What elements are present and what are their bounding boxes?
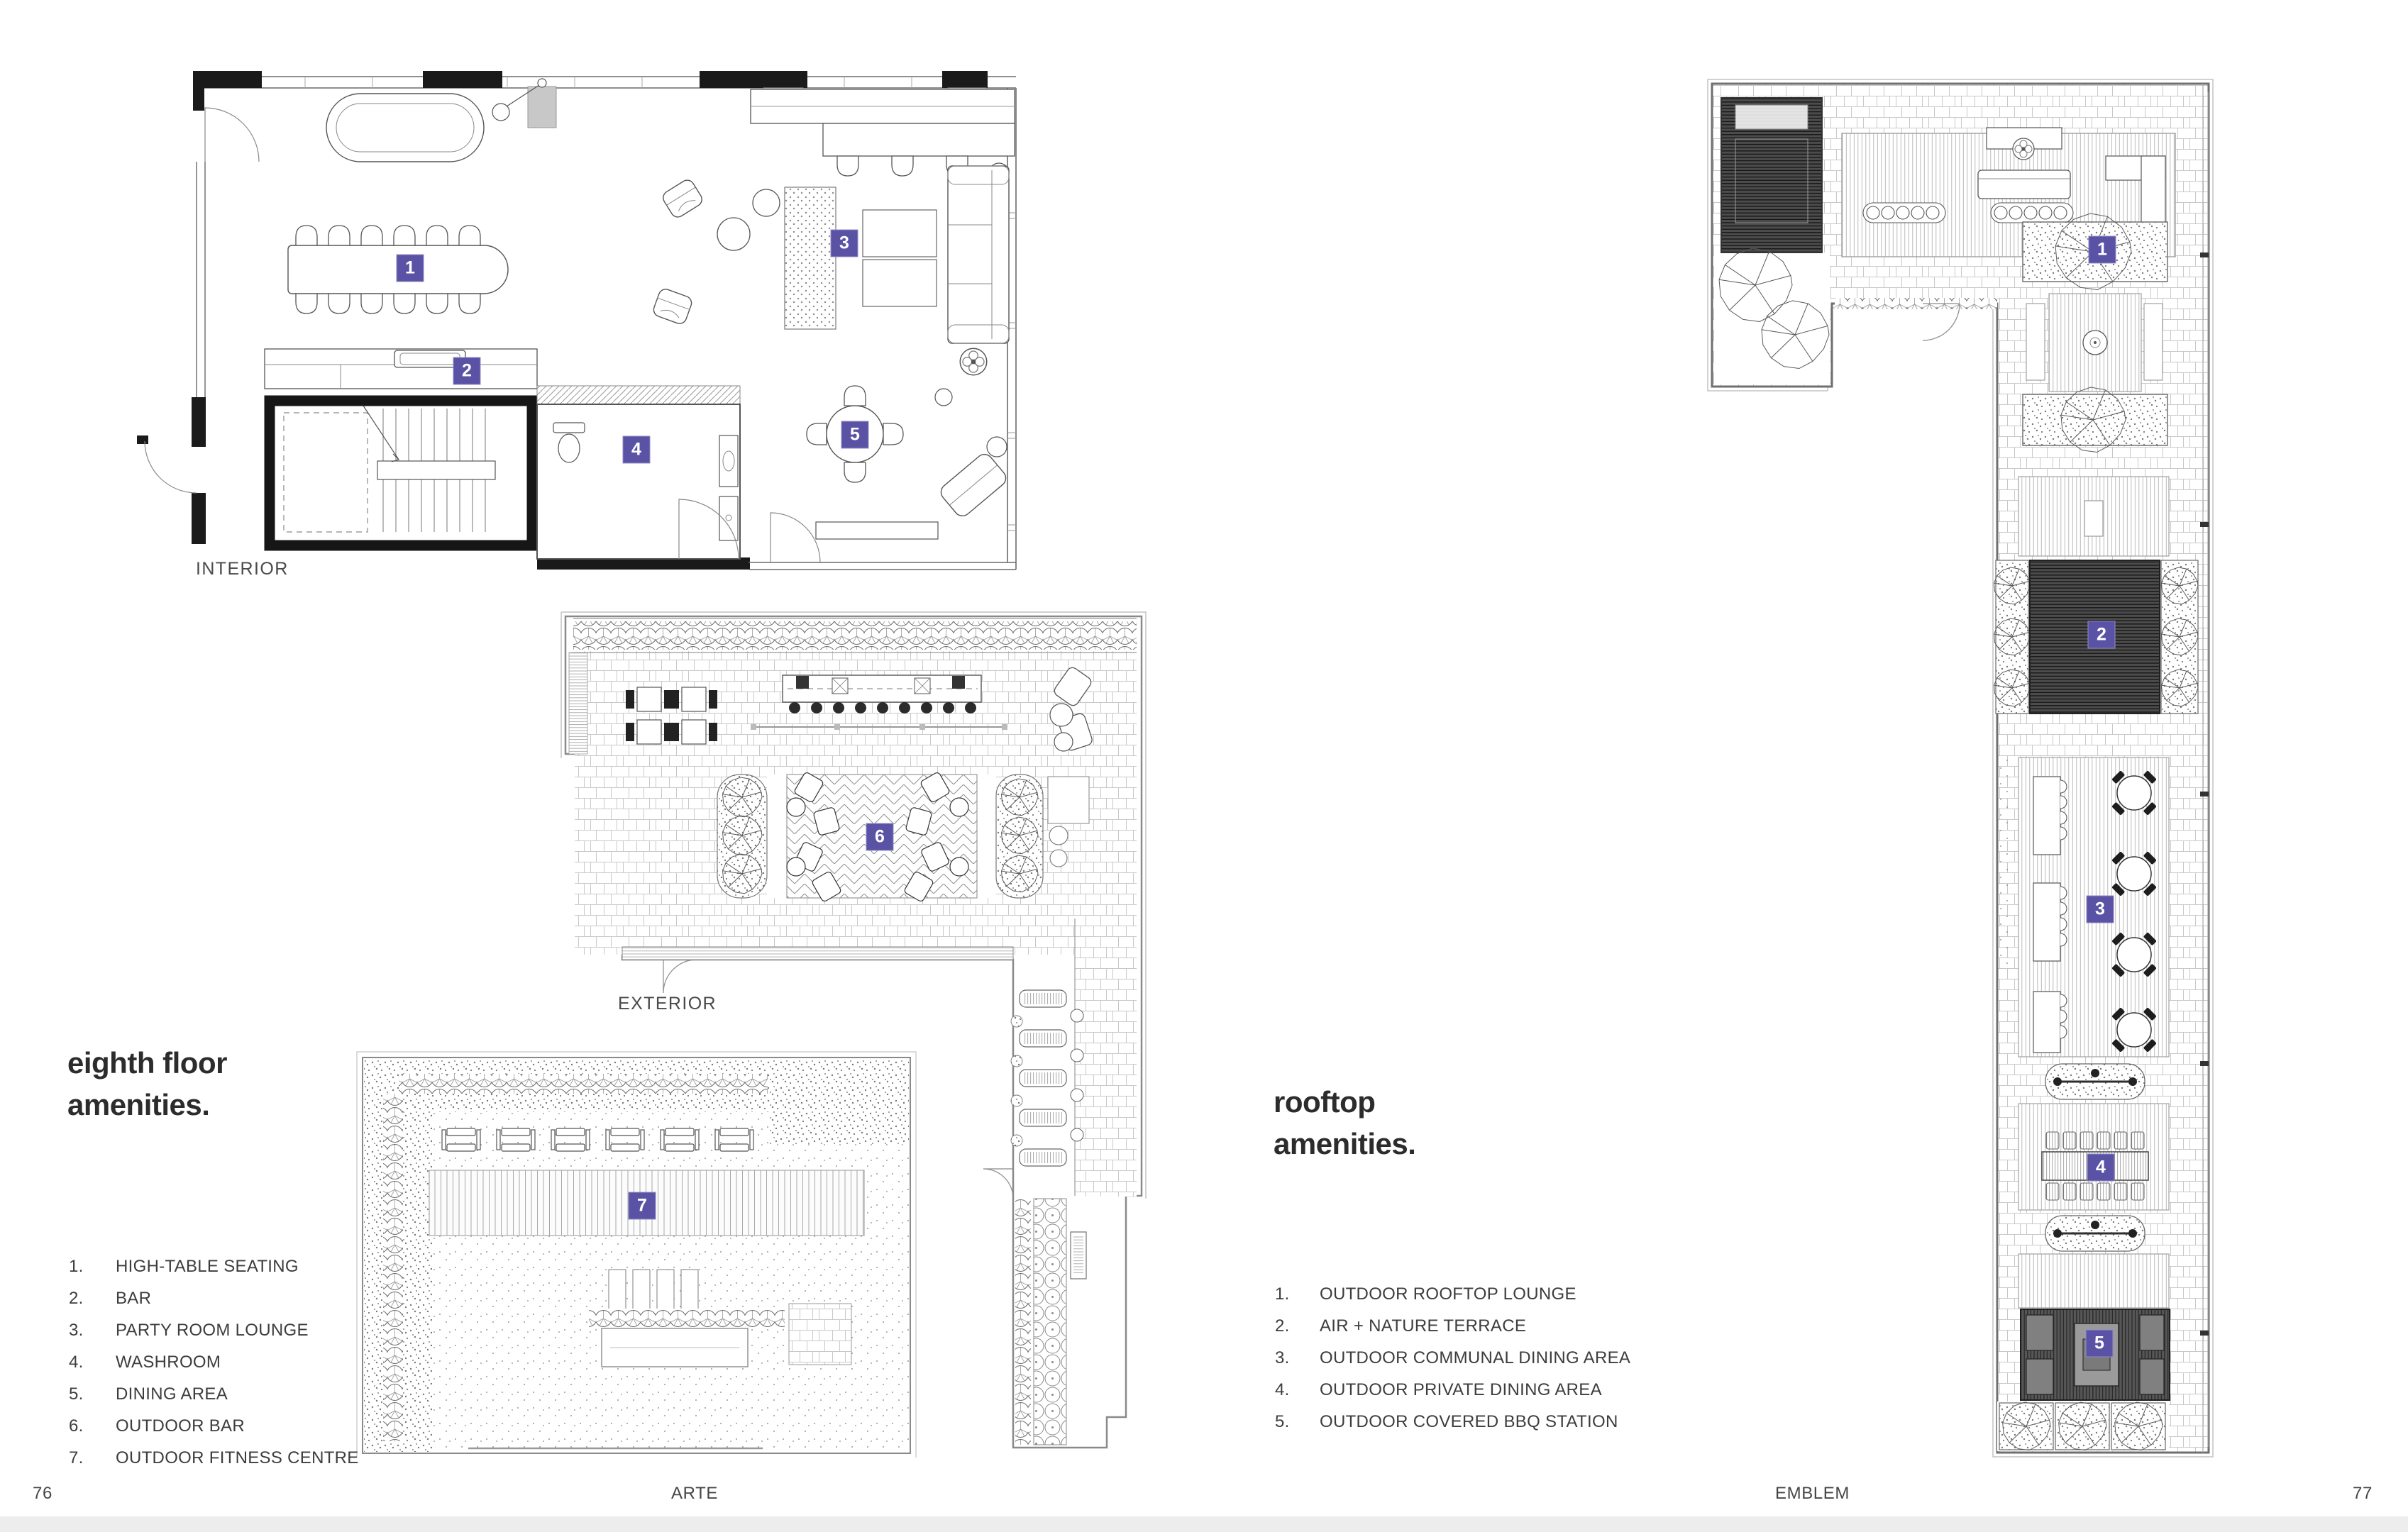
rooftop-floor-plan xyxy=(1703,74,2217,1461)
legend-item: 2. BAR xyxy=(69,1282,359,1314)
left-heading-line1: eighth floor xyxy=(67,1042,227,1084)
legend-item: 3. PARTY ROOM LOUNGE xyxy=(69,1314,359,1346)
stairwell xyxy=(270,401,532,545)
right-heading-line2: amenities. xyxy=(1274,1123,1415,1165)
planter-bench-2 xyxy=(2045,1216,2145,1251)
legend-item-label: OUTDOOR FITNESS CENTRE xyxy=(116,1448,359,1468)
legend-item-label: PARTY ROOM LOUNGE xyxy=(116,1321,309,1340)
side-path-paving xyxy=(1075,918,1137,1197)
communal-dining-deck xyxy=(1999,753,2169,1057)
party-room-lounge xyxy=(652,166,1009,406)
dining-long-table xyxy=(288,226,508,313)
washroom xyxy=(537,386,740,559)
right-footer-label: EMBLEM xyxy=(1775,1484,1850,1504)
right-heading-line1: rooftop xyxy=(1274,1081,1415,1123)
outdoor-fitness-centre xyxy=(357,1052,916,1458)
legend-item: 5. OUTDOOR COVERED BBQ STATION xyxy=(1275,1406,1630,1438)
left-heading-line2: amenities. xyxy=(67,1084,227,1126)
right-page-legend: 1. OUTDOOR ROOFTOP LOUNGE 2. AIR + NATUR… xyxy=(1275,1278,1630,1438)
legend-item-label: OUTDOOR ROOFTOP LOUNGE xyxy=(1320,1284,1576,1304)
rooftop-lounge-planter xyxy=(2023,213,2167,289)
air-nature-terrace xyxy=(1994,560,2198,714)
exterior-floor-plan xyxy=(351,606,1153,1458)
south-tree-planters xyxy=(1997,1401,2169,1451)
bar-counter xyxy=(265,349,537,389)
legend-item-number: 5. xyxy=(69,1384,116,1404)
interior-plan-label: INTERIOR xyxy=(196,559,289,579)
legend-item-number: 5. xyxy=(1275,1412,1320,1432)
legend-item-number: 2. xyxy=(69,1289,116,1309)
legend-item-number: 4. xyxy=(1275,1380,1320,1400)
legend-item-label: OUTDOOR COMMUNAL DINING AREA xyxy=(1320,1348,1630,1368)
legend-item: 7. OUTDOOR FITNESS CENTRE xyxy=(69,1442,359,1474)
outdoor-bar-lounge xyxy=(717,772,1089,902)
pergola-deck xyxy=(1714,98,1830,384)
legend-item: 4. WASHROOM xyxy=(69,1346,359,1378)
brochure-spread: { "colors": { "marker_bg": "#5a52a5", "h… xyxy=(0,0,2408,1532)
legend-item-label: AIR + NATURE TERRACE xyxy=(1320,1316,1526,1336)
dining-area-round-table xyxy=(807,386,903,482)
legend-item-number: 4. xyxy=(69,1353,116,1372)
legend-item-number: 6. xyxy=(69,1416,116,1436)
legend-item-number: 3. xyxy=(69,1321,116,1340)
legend-item-label: BAR xyxy=(116,1289,151,1309)
legend-item-label: OUTDOOR PRIVATE DINING AREA xyxy=(1320,1380,1602,1400)
legend-item: 2. AIR + NATURE TERRACE xyxy=(1275,1310,1630,1342)
private-dining xyxy=(2018,1104,2169,1210)
legend-item-label: OUTDOOR COVERED BBQ STATION xyxy=(1320,1412,1618,1432)
legend-item: 1. OUTDOOR ROOFTOP LOUNGE xyxy=(1275,1278,1630,1310)
bbq-station xyxy=(2021,1309,2170,1400)
left-footer-label: ARTE xyxy=(671,1484,718,1504)
legend-item-number: 2. xyxy=(1275,1316,1320,1336)
legend-item: 6. OUTDOOR BAR xyxy=(69,1410,359,1442)
right-page-heading: rooftop amenities. xyxy=(1274,1081,1415,1165)
second-planter xyxy=(2023,387,2167,453)
legend-item: 4. OUTDOOR PRIVATE DINING AREA xyxy=(1275,1374,1630,1406)
legend-item: 5. DINING AREA xyxy=(69,1378,359,1410)
interior-floor-plan xyxy=(131,60,1022,582)
planter-bench-1 xyxy=(2045,1064,2145,1099)
left-page-number: 76 xyxy=(33,1484,53,1504)
left-page-heading: eighth floor amenities. xyxy=(67,1042,227,1126)
legend-item-label: WASHROOM xyxy=(116,1353,221,1372)
mid-deck xyxy=(2018,477,2169,556)
legend-item: 3. OUTDOOR COMMUNAL DINING AREA xyxy=(1275,1342,1630,1374)
legend-item-label: HIGH-TABLE SEATING xyxy=(116,1257,299,1277)
legend-item-number: 1. xyxy=(69,1257,116,1277)
legend-item: 1. HIGH-TABLE SEATING xyxy=(69,1250,359,1282)
lounge-sofa-oval xyxy=(326,79,546,162)
exterior-plan-label: EXTERIOR xyxy=(618,994,717,1014)
page-bottom-strip xyxy=(0,1516,2408,1532)
legend-item-label: DINING AREA xyxy=(116,1384,228,1404)
legend-item-label: OUTDOOR BAR xyxy=(116,1416,245,1436)
left-page-legend: 1. HIGH-TABLE SEATING 2. BAR 3. PARTY RO… xyxy=(69,1250,359,1474)
right-page-number: 77 xyxy=(2353,1484,2373,1504)
legend-item-number: 3. xyxy=(1275,1348,1320,1368)
legend-item-number: 1. xyxy=(1275,1284,1320,1304)
south-deck-gap xyxy=(2018,1254,2169,1308)
legend-item-number: 7. xyxy=(69,1448,116,1468)
courtyard-hedge-door xyxy=(1835,298,1997,340)
